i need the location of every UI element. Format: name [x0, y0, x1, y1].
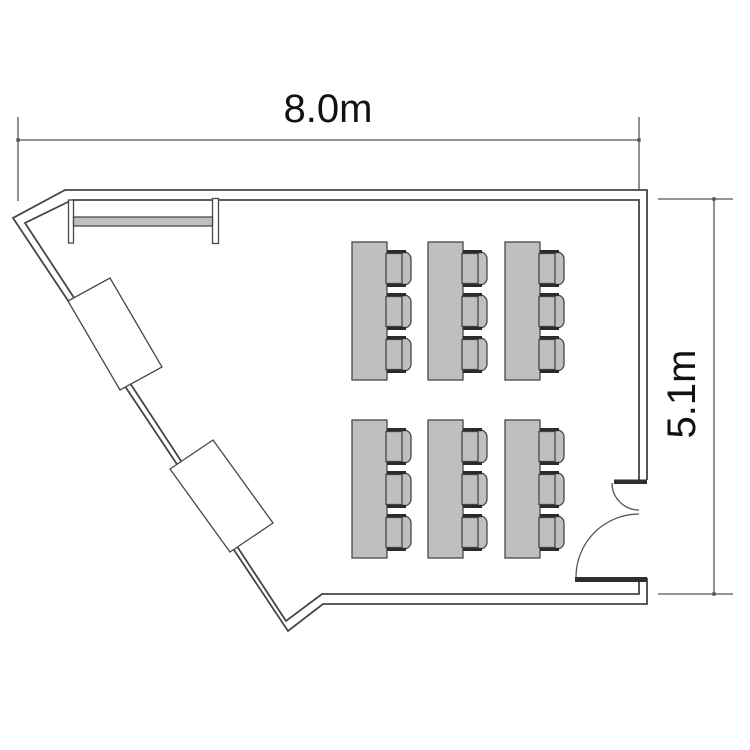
chair-armrest-top: [463, 428, 482, 431]
chair-armrest-bottom: [463, 505, 482, 508]
dimension-tick: [16, 138, 19, 141]
chair-armrest-bottom: [540, 462, 559, 465]
table-group: [352, 242, 411, 380]
chair-seat: [539, 340, 555, 370]
chair-armrest-bottom: [540, 284, 559, 287]
chair-seat: [386, 432, 402, 462]
chair: [462, 336, 487, 373]
wall-bench: [69, 199, 219, 244]
chair: [386, 514, 411, 551]
chair-armrest-top: [387, 514, 406, 517]
chair-seat: [462, 432, 478, 462]
dimension-width: 8.0m: [16, 87, 640, 201]
height-dimension-label: 5.1m: [660, 350, 704, 439]
chair-armrest-bottom: [540, 505, 559, 508]
chair-armrest-top: [387, 471, 406, 474]
chair-armrest-bottom: [540, 327, 559, 330]
chair-armrest-bottom: [540, 548, 559, 551]
chair-seat: [462, 340, 478, 370]
bench-post-left: [69, 200, 74, 243]
chair-armrest-bottom: [387, 327, 406, 330]
door-swing-arc-large: [576, 514, 639, 577]
chair-seat: [386, 297, 402, 327]
chair: [539, 471, 564, 508]
chair-seat: [462, 254, 478, 284]
floor-plan-drawing: 8.0m 5.1m: [0, 0, 750, 750]
dimension-height: 5.1m: [658, 197, 733, 595]
chair-armrest-top: [540, 250, 559, 253]
table-group: [428, 420, 487, 558]
chair-seat: [539, 518, 555, 548]
table: [428, 242, 463, 380]
angled-desks: [68, 278, 273, 552]
chair-armrest-top: [463, 471, 482, 474]
chair-seat: [462, 475, 478, 505]
chair-armrest-top: [387, 250, 406, 253]
angled-desk: [170, 440, 273, 552]
chair-armrest-top: [387, 293, 406, 296]
dimension-tick: [712, 592, 715, 595]
chair-armrest-top: [463, 336, 482, 339]
chair-seat: [462, 518, 478, 548]
chair-armrest-top: [540, 336, 559, 339]
chair-armrest-top: [463, 250, 482, 253]
chair-armrest-top: [540, 514, 559, 517]
door-leaf-bottom: [575, 577, 647, 582]
chair-armrest-top: [540, 428, 559, 431]
bench-post-right: [213, 199, 219, 244]
chair-armrest-top: [463, 293, 482, 296]
table-group: [428, 242, 487, 380]
chair: [462, 428, 487, 465]
table: [352, 420, 387, 558]
bench-top: [74, 217, 213, 226]
entrance-door: [575, 480, 647, 583]
chair: [386, 293, 411, 330]
angled-desk: [68, 278, 162, 390]
chair-armrest-top: [540, 471, 559, 474]
table-group: [352, 420, 411, 558]
chair-armrest-bottom: [463, 327, 482, 330]
chair-armrest-top: [387, 336, 406, 339]
chair: [462, 514, 487, 551]
chair-armrest-bottom: [463, 370, 482, 373]
chair-seat: [386, 475, 402, 505]
floor-plan-canvas: 8.0m 5.1m: [0, 0, 750, 750]
chair: [386, 428, 411, 465]
chair-armrest-bottom: [387, 284, 406, 287]
chair-armrest-bottom: [463, 548, 482, 551]
chair-armrest-bottom: [540, 370, 559, 373]
chair: [539, 428, 564, 465]
table-group: [505, 420, 564, 558]
chair-seat: [539, 254, 555, 284]
chair: [539, 514, 564, 551]
table: [505, 420, 540, 558]
chair: [539, 250, 564, 287]
chair-seat: [539, 475, 555, 505]
chair: [462, 250, 487, 287]
chair-seat: [386, 254, 402, 284]
width-dimension-label: 8.0m: [284, 87, 373, 131]
chair-armrest-bottom: [387, 548, 406, 551]
chair-seat: [462, 297, 478, 327]
chair-seat: [539, 432, 555, 462]
chair: [386, 336, 411, 373]
chair: [462, 293, 487, 330]
table: [352, 242, 387, 380]
dimension-tick: [637, 138, 640, 141]
chair-seat: [386, 340, 402, 370]
chair-armrest-bottom: [463, 462, 482, 465]
chair: [539, 336, 564, 373]
chair-seat: [386, 518, 402, 548]
chair-armrest-bottom: [463, 284, 482, 287]
chair-armrest-bottom: [387, 370, 406, 373]
chair-armrest-bottom: [387, 462, 406, 465]
table: [505, 242, 540, 380]
table: [428, 420, 463, 558]
chair-armrest-top: [540, 293, 559, 296]
door-jamb-top: [614, 480, 647, 485]
chair-armrest-top: [387, 428, 406, 431]
chair-armrest-bottom: [387, 505, 406, 508]
dimension-tick: [712, 197, 715, 200]
chair: [539, 293, 564, 330]
chair-armrest-top: [463, 514, 482, 517]
chair: [386, 250, 411, 287]
chair-seat: [539, 297, 555, 327]
door-swing-arc-small: [612, 483, 639, 510]
table-group: [505, 242, 564, 380]
chair: [462, 471, 487, 508]
tables-area: [352, 242, 564, 558]
chair: [386, 471, 411, 508]
